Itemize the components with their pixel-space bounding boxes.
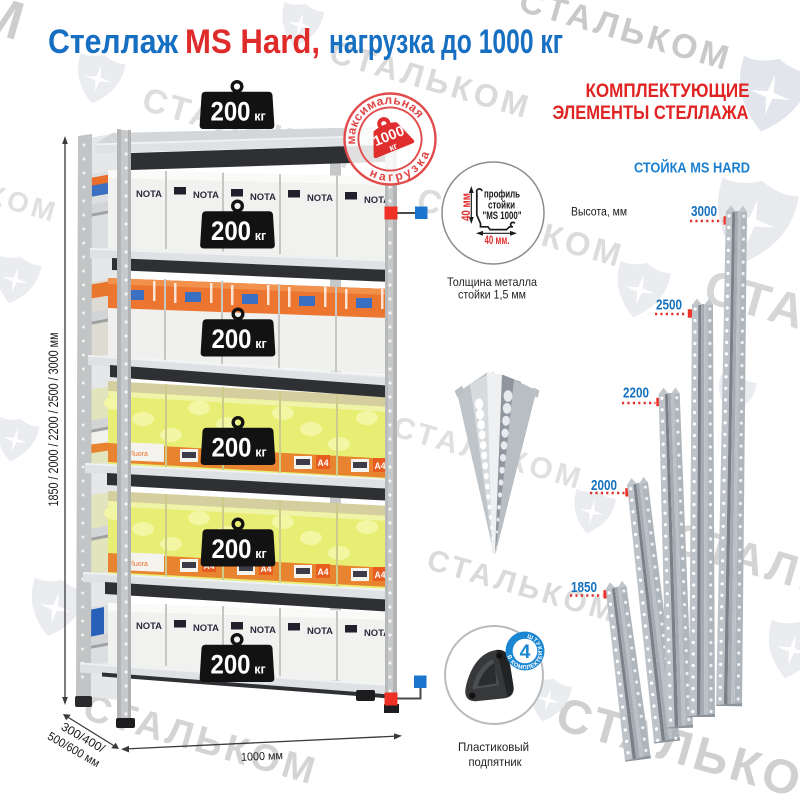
- svg-text:40 мм.: 40 мм.: [485, 235, 510, 247]
- svg-text:NOTA: NOTA: [250, 192, 276, 203]
- svg-text:NOTA: NOTA: [307, 193, 333, 204]
- svg-text:стойки 1,5 мм: стойки 1,5 мм: [458, 288, 526, 302]
- svg-text:NOTA: NOTA: [136, 621, 162, 632]
- svg-text:A4: A4: [318, 567, 329, 577]
- svg-text:СТОЙКА MS HARD: СТОЙКА MS HARD: [634, 159, 750, 177]
- svg-text:2200: 2200: [623, 385, 649, 402]
- svg-text:подпятник: подпятник: [469, 755, 523, 769]
- svg-text:MS Hard,: MS Hard,: [185, 23, 320, 61]
- svg-text:ЭЛЕМЕНТЫ СТЕЛЛАЖА: ЭЛЕМЕНТЫ СТЕЛЛАЖА: [553, 103, 749, 124]
- svg-text:4: 4: [520, 641, 531, 663]
- svg-text:Высота, мм: Высота, мм: [571, 207, 627, 219]
- svg-text:NOTA: NOTA: [193, 190, 219, 201]
- svg-text:1850 / 2000 / 2200 / 2500 / 30: 1850 / 2000 / 2200 / 2500 / 3000 мм: [46, 333, 61, 507]
- svg-text:NOTA: NOTA: [136, 189, 162, 200]
- svg-text:A4: A4: [375, 461, 386, 471]
- svg-text:NOTA: NOTA: [250, 625, 276, 636]
- svg-text:NOTA: NOTA: [193, 623, 219, 634]
- svg-text:2500: 2500: [656, 297, 682, 314]
- svg-text:3000: 3000: [691, 203, 717, 220]
- svg-text:нагрузка до 1000 кг: нагрузка до 1000 кг: [329, 23, 563, 61]
- svg-text:A4: A4: [318, 458, 329, 468]
- svg-text:1000 мм: 1000 мм: [241, 750, 284, 764]
- svg-text:1850: 1850: [571, 579, 597, 596]
- svg-text:40 мм: 40 мм: [461, 193, 473, 221]
- svg-text:Стеллаж: Стеллаж: [48, 23, 179, 61]
- svg-text:КОМПЛЕКТУЮЩИЕ: КОМПЛЕКТУЮЩИЕ: [586, 81, 750, 102]
- svg-text:A4: A4: [375, 570, 386, 580]
- svg-text:Пластиковый: Пластиковый: [458, 740, 529, 754]
- svg-text:2000: 2000: [591, 477, 617, 494]
- svg-text:NOTA: NOTA: [307, 626, 333, 637]
- svg-text:"MS 1000": "MS 1000": [483, 210, 522, 222]
